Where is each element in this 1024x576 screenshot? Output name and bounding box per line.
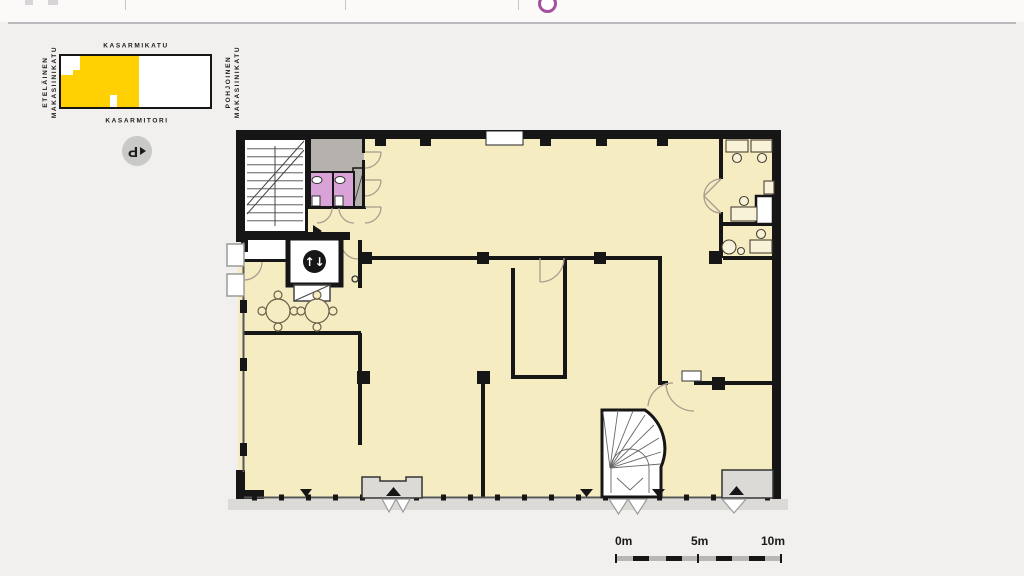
sidewalk [228,499,788,510]
chair [758,154,767,163]
desk [751,140,772,152]
toolbar-divider [345,0,346,10]
floorplan: ↑↓ [226,124,796,520]
stool [738,248,745,255]
street-label-top: KASARMIKATU [103,42,169,51]
sink-icon [312,177,322,184]
wc-rooms [310,172,354,208]
cabinet [764,181,774,194]
accent-ring-icon[interactable] [538,0,557,13]
scale-label-end: 10m [761,534,785,548]
spiral-staircase [602,410,665,497]
elevator-lobby [244,240,288,262]
toolbar-icon-remnant [25,0,33,5]
table [722,240,736,254]
toolbar-divider [518,0,519,10]
toilet-icon [335,196,343,206]
street-label-left: ETELÄINEN MAKASIINIKATU [41,46,59,118]
toolbar-icon-remnant [48,0,58,5]
parking-arrow-icon [140,147,146,155]
scale-label-mid: 5m [691,534,708,548]
scale-bar: 0m 5m 10m [615,534,785,566]
chair [733,154,742,163]
street-label-right: POHJOINEN MAKASIINIKATU [224,46,242,118]
vestibule [722,470,773,498]
stairwell [244,139,306,232]
street-label-bottom: KASARMITORI [105,117,168,126]
toolbar-divider [125,0,126,10]
desk [726,140,748,152]
locator-map [59,54,212,109]
sink-icon [335,177,345,184]
parking-letter: P [128,144,138,159]
scale-label-start: 0m [615,534,632,548]
desk [750,240,772,253]
closet [756,196,773,224]
chair [740,197,749,206]
header-rule [8,22,1016,24]
toilet-icon [312,196,320,206]
elevator-icon: ↑↓ [304,255,324,269]
chair [757,230,766,239]
desk [731,207,757,221]
toolbar [0,0,1024,22]
parking-icon: P [122,136,152,166]
